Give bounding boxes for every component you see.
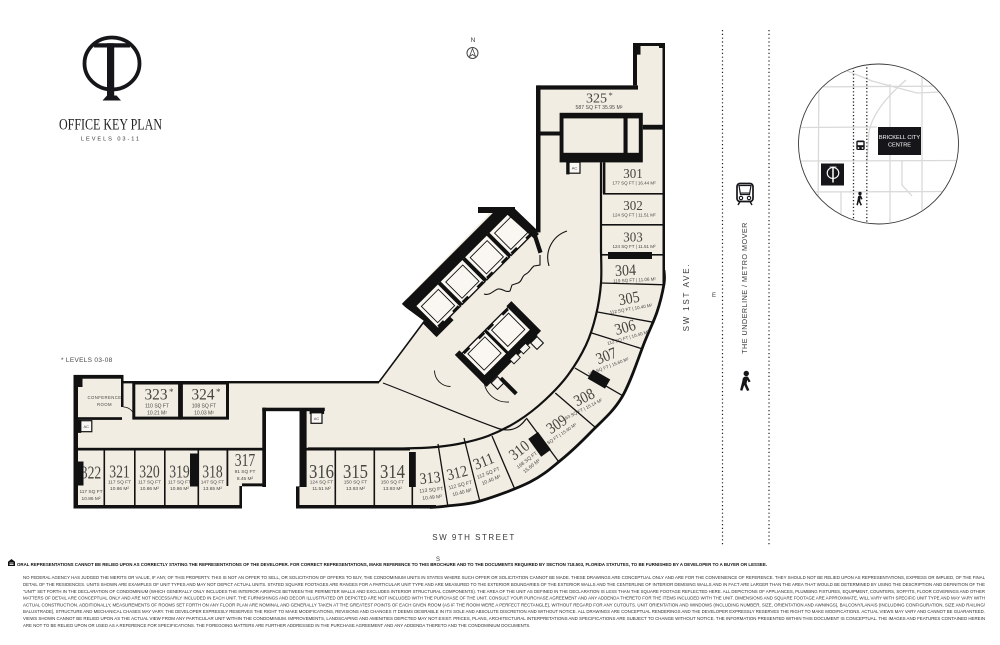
svg-text:*: * xyxy=(169,387,174,397)
svg-text:321: 321 xyxy=(109,462,130,482)
svg-text:124 SQ FT | 11.51 M²: 124 SQ FT | 11.51 M² xyxy=(612,213,656,218)
svg-text:147 SQ FT: 147 SQ FT xyxy=(201,480,225,486)
svg-text:587 SQ FT 35.95 M²: 587 SQ FT 35.95 M² xyxy=(576,105,623,111)
svg-text:ARE NOT TO BE RELIED UPON OR U: ARE NOT TO BE RELIED UPON OR USED AS A R… xyxy=(23,623,531,628)
svg-text:LEVELS 03-11: LEVELS 03-11 xyxy=(81,137,141,143)
svg-text:THE UNDERLINE / METRO MOVER: THE UNDERLINE / METRO MOVER xyxy=(740,222,749,354)
svg-text:117 SQ FT: 117 SQ FT xyxy=(79,489,102,495)
svg-text:117 SQ FT: 117 SQ FT xyxy=(138,480,161,486)
svg-text:324: 324 xyxy=(192,387,215,404)
svg-text:314: 314 xyxy=(380,461,405,483)
svg-text:322: 322 xyxy=(81,463,102,483)
svg-text:CENTRE: CENTRE xyxy=(888,143,911,149)
svg-text:CONFERENCE: CONFERENCE xyxy=(87,395,121,400)
svg-text:E: E xyxy=(712,293,716,299)
svg-text:117 SQ FT: 117 SQ FT xyxy=(168,480,191,486)
svg-text:AC: AC xyxy=(572,166,578,171)
svg-text:11.51 M²: 11.51 M² xyxy=(312,486,331,492)
svg-text:316: 316 xyxy=(309,461,334,483)
svg-text:177 SQ FT | 16.44 M²: 177 SQ FT | 16.44 M² xyxy=(612,181,656,186)
svg-text:N: N xyxy=(471,37,476,44)
svg-text:10.86 M²: 10.86 M² xyxy=(170,486,189,492)
svg-text:10.86 M²: 10.86 M² xyxy=(110,486,129,492)
svg-text:13.65 M²: 13.65 M² xyxy=(203,486,222,492)
svg-text:315: 315 xyxy=(343,461,368,483)
svg-text:*: * xyxy=(609,90,613,100)
svg-text:MATTERS OF DETAIL ARE CONCEPTU: MATTERS OF DETAIL ARE CONCEPTUAL ONLY AN… xyxy=(23,596,985,601)
svg-text:150 SQ FT: 150 SQ FT xyxy=(344,480,368,486)
svg-text:313: 313 xyxy=(419,469,442,488)
svg-text:108 SQ FT: 108 SQ FT xyxy=(192,404,216,410)
svg-text:"UNIT" SET FORTH IN THE DECLAR: "UNIT" SET FORTH IN THE DECLARATION OF C… xyxy=(23,589,985,594)
svg-text:BALUSTRADE), STRUCTURE AND MEC: BALUSTRADE), STRUCTURE AND MECHANICAL CH… xyxy=(23,609,985,614)
svg-text:DETAIL OF THE RESIDENCES. UNIT: DETAIL OF THE RESIDENCES. UNITS SHOWN AR… xyxy=(23,582,985,587)
svg-text:13.93 M²: 13.93 M² xyxy=(383,486,402,492)
svg-text:* LEVELS 03-08: * LEVELS 03-08 xyxy=(61,357,113,364)
svg-text:AC: AC xyxy=(314,416,320,421)
svg-text:10.21 M²: 10.21 M² xyxy=(147,411,167,417)
svg-text:VIEWS SHOWN CANNOT BE RELIED U: VIEWS SHOWN CANNOT BE RELIED UPON AS THE… xyxy=(23,616,985,621)
svg-text:323: 323 xyxy=(145,387,168,404)
svg-text:BRICKELL CITY: BRICKELL CITY xyxy=(879,135,920,141)
svg-text:NO FEDERAL AGENCY HAS JUDGED T: NO FEDERAL AGENCY HAS JUDGED THE MERITS … xyxy=(23,575,986,580)
svg-text:10.86 M²: 10.86 M² xyxy=(82,496,101,502)
svg-text:10.86 M²: 10.86 M² xyxy=(140,486,159,492)
svg-text:124 SQ FT | 11.51 M²: 124 SQ FT | 11.51 M² xyxy=(612,244,656,249)
svg-text:317: 317 xyxy=(235,450,256,470)
svg-text:91 SQ FT: 91 SQ FT xyxy=(235,469,256,475)
svg-text:AC: AC xyxy=(84,424,90,429)
svg-text:13.93 M²: 13.93 M² xyxy=(346,486,365,492)
svg-text:318: 318 xyxy=(202,462,223,482)
svg-text:320: 320 xyxy=(139,462,160,482)
svg-text:117 SQ FT: 117 SQ FT xyxy=(108,480,131,486)
svg-text:10.03 M²: 10.03 M² xyxy=(194,411,214,417)
svg-text:110 SQ FT: 110 SQ FT xyxy=(145,404,169,410)
svg-text:150 SQ FT: 150 SQ FT xyxy=(381,480,405,486)
svg-text:124 SQ FT: 124 SQ FT xyxy=(310,480,334,486)
svg-text:ROOM: ROOM xyxy=(97,402,112,407)
svg-text:8.45 M²: 8.45 M² xyxy=(237,476,254,482)
svg-text:*: * xyxy=(216,387,221,397)
svg-text:ORAL REPRESENTATIONS CANNOT BE: ORAL REPRESENTATIONS CANNOT BE RELIED UP… xyxy=(17,562,767,568)
svg-text:SW 9TH STREET: SW 9TH STREET xyxy=(432,533,516,542)
svg-text:OFFICE KEY PLAN: OFFICE KEY PLAN xyxy=(59,117,162,134)
svg-text:319: 319 xyxy=(169,462,190,482)
svg-text:ACTUAL CONSTRUCTION. ADDITIONA: ACTUAL CONSTRUCTION. ADDITIONALLY, MEASU… xyxy=(23,602,986,607)
svg-text:SW 1ST AVE.: SW 1ST AVE. xyxy=(682,263,691,332)
